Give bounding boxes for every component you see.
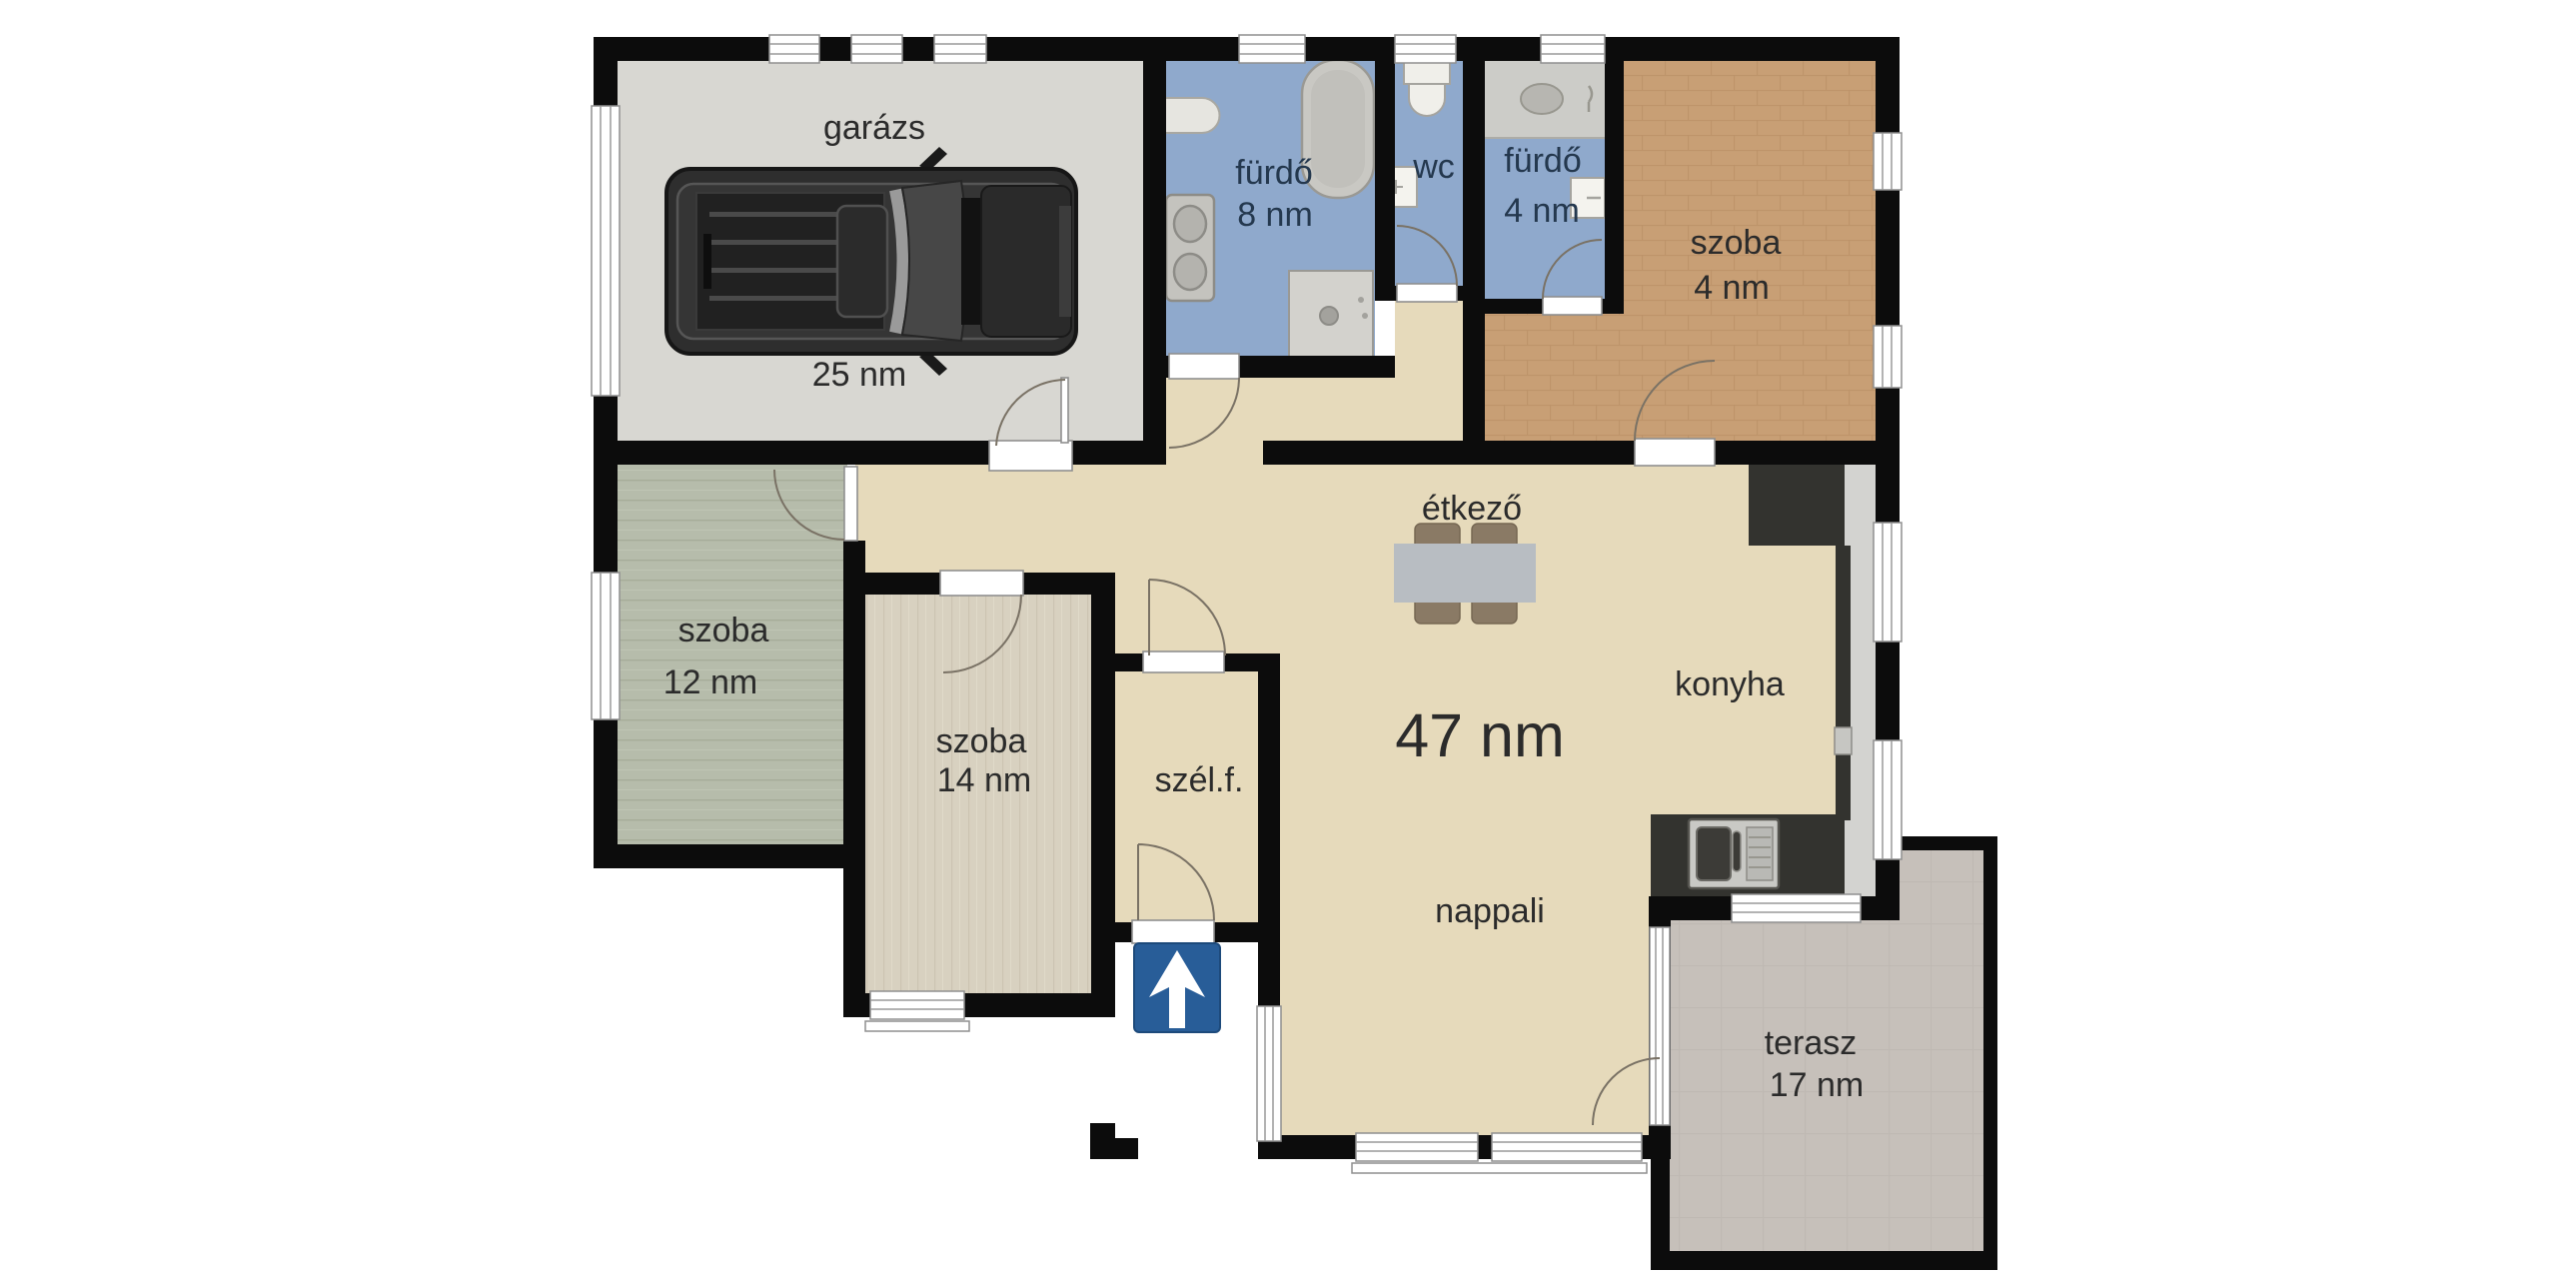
svg-text:17 nm: 17 nm [1770, 1066, 1865, 1104]
svg-text:szoba: szoba [1691, 224, 1782, 262]
svg-text:4 nm: 4 nm [1504, 192, 1580, 230]
svg-text:14 nm: 14 nm [937, 761, 1032, 799]
svg-text:nappali: nappali [1435, 892, 1545, 930]
svg-text:47 nm: 47 nm [1395, 701, 1565, 769]
svg-text:4 nm: 4 nm [1694, 269, 1770, 307]
svg-text:szoba: szoba [936, 722, 1027, 760]
svg-text:8 nm: 8 nm [1237, 196, 1313, 234]
svg-text:szoba: szoba [678, 612, 769, 649]
svg-text:garázs: garázs [823, 109, 925, 147]
svg-text:konyha: konyha [1675, 665, 1785, 703]
svg-text:12 nm: 12 nm [663, 663, 758, 701]
svg-text:25 nm: 25 nm [812, 356, 907, 394]
svg-text:terasz: terasz [1765, 1024, 1858, 1062]
svg-text:szél.f.: szél.f. [1155, 761, 1244, 799]
svg-text:étkező: étkező [1422, 490, 1522, 528]
svg-text:fürdő: fürdő [1235, 154, 1313, 192]
svg-text:wc: wc [1412, 148, 1455, 186]
svg-text:fürdő: fürdő [1504, 142, 1582, 180]
